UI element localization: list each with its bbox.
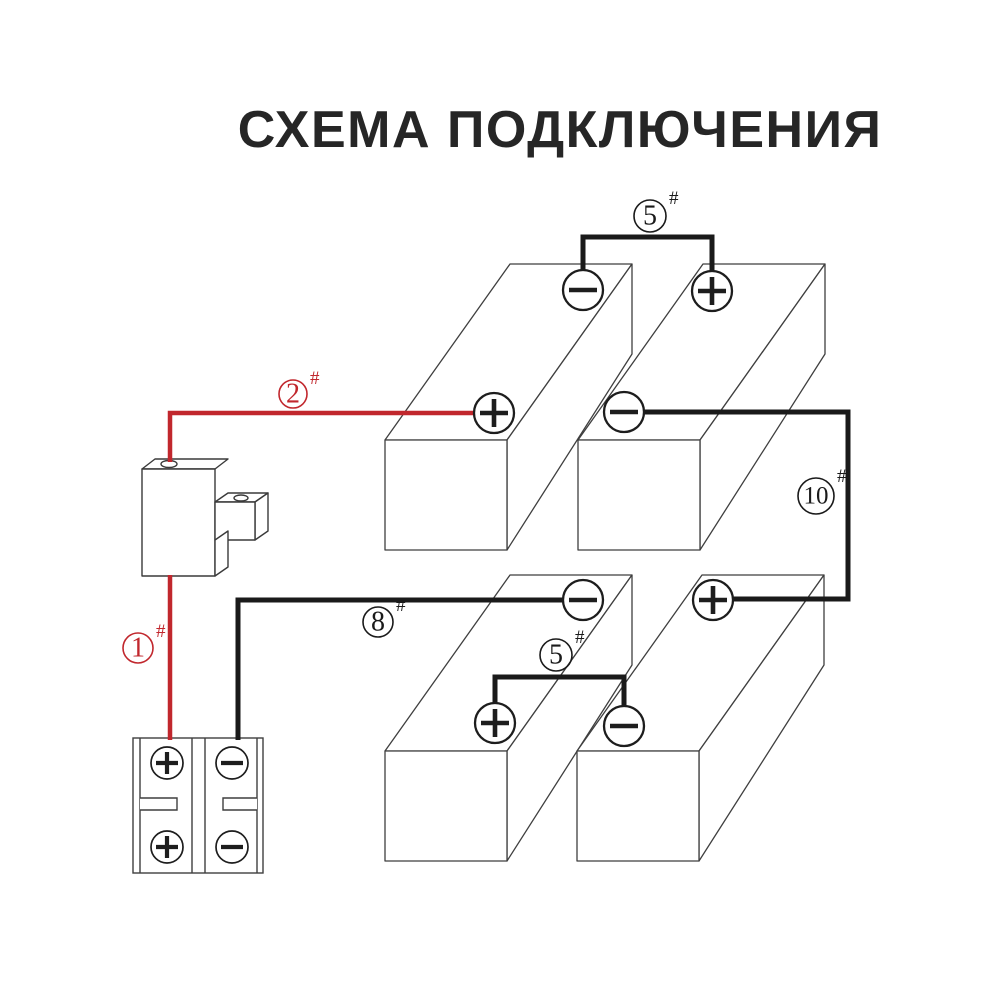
- diagram-page: СХЕМА ПОДКЛЮЧЕНИЯ 5#2#1#8#5#10#: [0, 0, 1000, 1000]
- battery-terminal-minus: [604, 392, 644, 432]
- battery-terminal-plus: [474, 393, 514, 433]
- t-connector-arm-front: [215, 502, 255, 540]
- t-connector-body-front: [142, 469, 215, 576]
- label-number: 8: [371, 607, 385, 638]
- battery-face-front: [577, 751, 699, 861]
- page-title: СХЕМА ПОДКЛЮЧЕНИЯ: [238, 101, 883, 159]
- battery-face-front: [385, 751, 507, 861]
- battery-terminal-plus: [692, 271, 732, 311]
- t-connector-arm-hole: [234, 495, 248, 501]
- battery-terminal-plus: [475, 703, 515, 743]
- block-slot-right: [223, 798, 257, 810]
- connection-diagram: СХЕМА ПОДКЛЮЧЕНИЯ 5#2#1#8#5#10#: [0, 0, 1000, 1000]
- wire-label-2: 2#: [279, 368, 320, 410]
- battery-face-front: [385, 440, 507, 550]
- label-number: 1: [131, 633, 145, 664]
- label-number: 2: [286, 379, 300, 410]
- wire-label-10: 10#: [798, 466, 847, 514]
- label-number: 5: [549, 640, 563, 671]
- battery-terminal-plus: [693, 580, 733, 620]
- block-screw-minus: [216, 747, 248, 779]
- battery-terminal-minus: [563, 270, 603, 310]
- wire-label-5: 5#: [634, 188, 679, 232]
- label-number: 10: [804, 483, 829, 510]
- label-hash-suffix: #: [396, 595, 406, 616]
- label-hash-suffix: #: [837, 466, 847, 487]
- label-number: 5: [643, 201, 657, 232]
- label-hash-suffix: #: [310, 368, 320, 389]
- t-connector: [142, 459, 268, 576]
- battery-terminal-minus: [604, 706, 644, 746]
- batteries-group: [385, 264, 825, 861]
- label-hash-suffix: #: [156, 621, 166, 642]
- t-connector-top-face: [142, 459, 228, 469]
- block-screw-plus: [151, 747, 183, 779]
- block-slot-left: [140, 798, 177, 810]
- wire-label-1: 1#: [123, 621, 166, 664]
- battery-face-front: [578, 440, 700, 550]
- block-screw-plus: [151, 831, 183, 863]
- battery-terminal-minus: [563, 580, 603, 620]
- label-hash-suffix: #: [669, 188, 679, 209]
- block-screw-minus: [216, 831, 248, 863]
- t-connector-arm-side-face: [255, 493, 268, 540]
- label-hash-suffix: #: [575, 627, 585, 648]
